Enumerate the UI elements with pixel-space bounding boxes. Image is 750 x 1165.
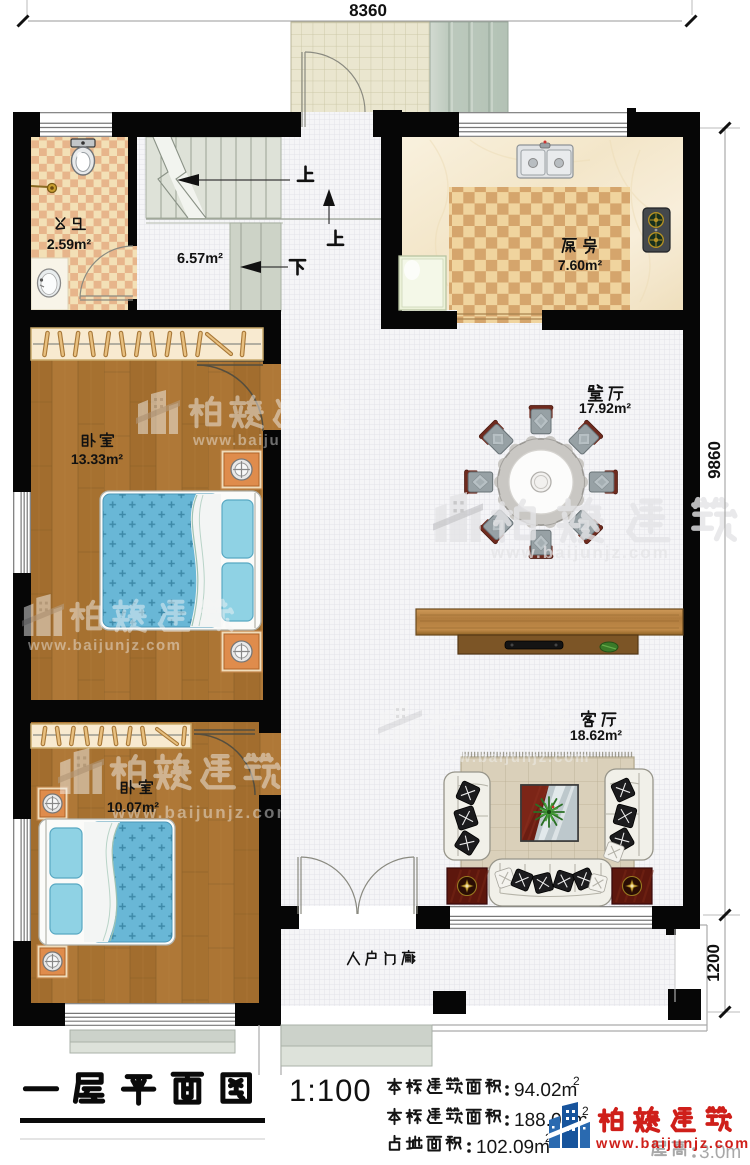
svg-text:9860: 9860 xyxy=(705,441,724,479)
svg-text:www.baijunjz.com: www.baijunjz.com xyxy=(431,749,590,766)
svg-text:2: 2 xyxy=(582,1104,589,1118)
svg-text:102.09m: 102.09m xyxy=(476,1137,550,1158)
svg-text:18.62m²: 18.62m² xyxy=(570,727,622,743)
svg-text:7.60m²: 7.60m² xyxy=(558,257,603,273)
svg-text:www.baijunjz.com: www.baijunjz.com xyxy=(595,1136,750,1152)
svg-text:1200: 1200 xyxy=(704,944,723,982)
svg-text:10.07m²: 10.07m² xyxy=(107,799,159,815)
svg-text:1:100: 1:100 xyxy=(289,1073,372,1108)
svg-text:2.59m²: 2.59m² xyxy=(47,236,92,252)
svg-text:2: 2 xyxy=(573,1074,580,1088)
svg-text:6.57m²: 6.57m² xyxy=(177,251,223,267)
svg-text:www.baijunjz.com: www.baijunjz.com xyxy=(27,637,181,654)
svg-text:www.baijunjz.com: www.baijunjz.com xyxy=(192,432,346,449)
svg-text:94.02m: 94.02m xyxy=(514,1080,577,1101)
svg-text:17.92m²: 17.92m² xyxy=(579,400,631,416)
svg-text:13.33m²: 13.33m² xyxy=(71,451,123,467)
svg-text:www.baijunjz.com: www.baijunjz.com xyxy=(490,543,670,562)
svg-text:8360: 8360 xyxy=(349,1,387,20)
